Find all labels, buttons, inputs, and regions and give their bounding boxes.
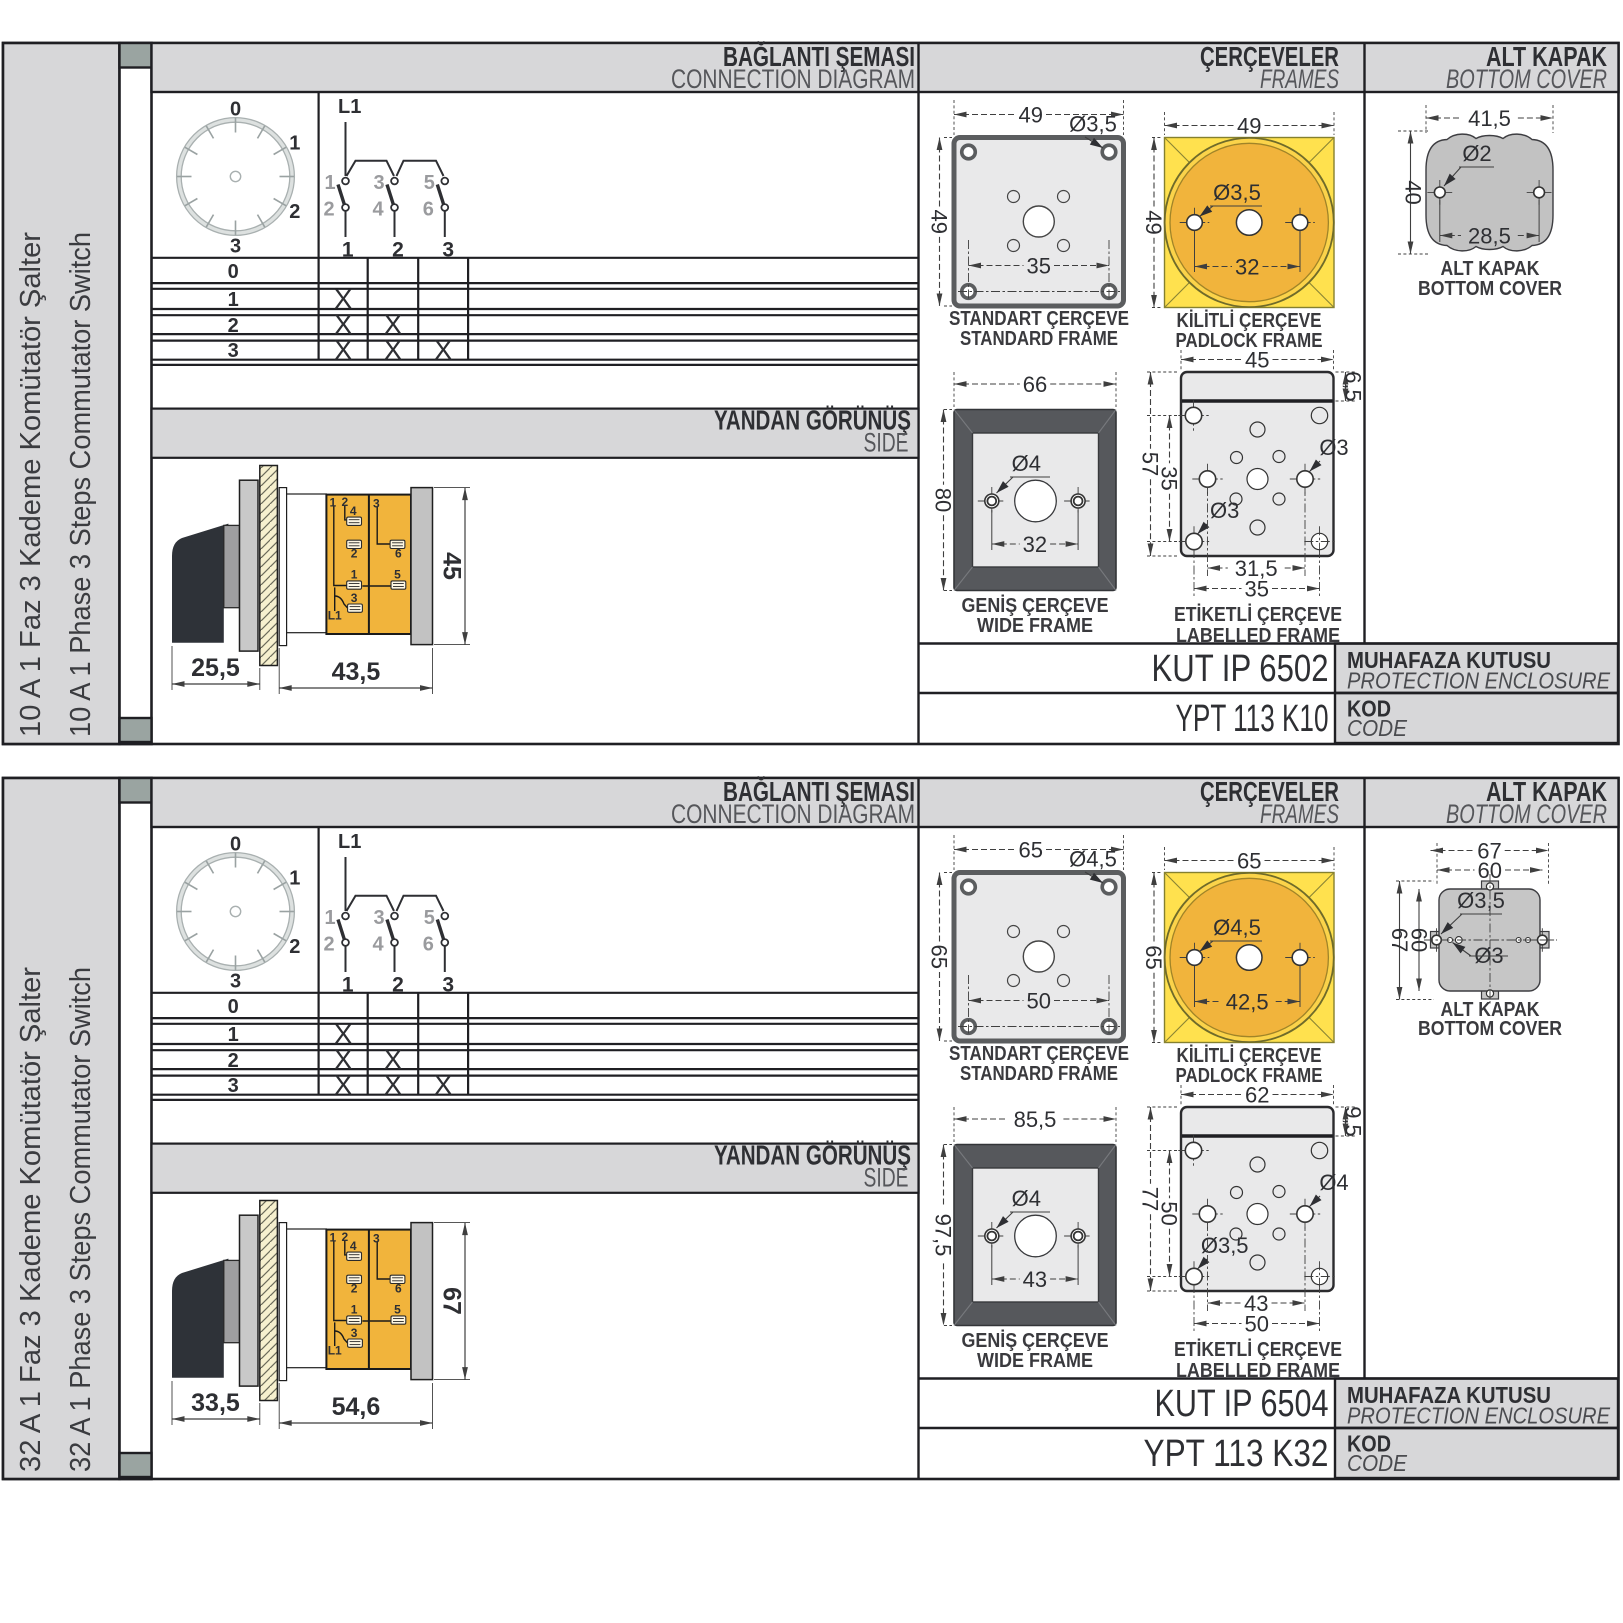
svg-text:L1: L1: [328, 608, 342, 622]
svg-text:4: 4: [372, 934, 384, 956]
svg-text:2: 2: [323, 199, 334, 221]
svg-text:33,5: 33,5: [191, 1389, 240, 1417]
svg-text:ETİKETLİ ÇERÇEVE: ETİKETLİ ÇERÇEVE: [1174, 603, 1342, 626]
svg-text:5: 5: [394, 1303, 401, 1317]
svg-text:3: 3: [351, 591, 358, 605]
svg-text:80: 80: [931, 488, 956, 512]
svg-text:KUT IP 6504: KUT IP 6504: [1155, 1383, 1329, 1425]
svg-text:X: X: [334, 1069, 353, 1100]
svg-text:X: X: [334, 334, 353, 365]
svg-text:L1: L1: [328, 1343, 342, 1357]
svg-text:1: 1: [228, 289, 239, 311]
svg-text:PROTECTION ENCLOSURE: PROTECTION ENCLOSURE: [1347, 668, 1610, 694]
svg-text:3: 3: [373, 497, 380, 511]
svg-text:50: 50: [1245, 1311, 1269, 1336]
svg-text:Ø4,5: Ø4,5: [1069, 847, 1117, 872]
svg-text:BOTTOM COVER: BOTTOM COVER: [1418, 277, 1562, 300]
svg-text:28,5: 28,5: [1468, 223, 1511, 248]
svg-text:3: 3: [228, 1075, 239, 1097]
svg-text:Ø3,5: Ø3,5: [1213, 180, 1261, 205]
svg-text:4: 4: [350, 1239, 357, 1253]
svg-text:Ø4,5: Ø4,5: [1213, 915, 1261, 940]
svg-text:6,5: 6,5: [1340, 371, 1365, 402]
svg-text:60: 60: [1406, 928, 1431, 952]
svg-text:2: 2: [289, 201, 300, 223]
svg-text:Ø3,5: Ø3,5: [1201, 1233, 1249, 1258]
svg-text:1: 1: [351, 568, 358, 582]
svg-text:65: 65: [927, 945, 952, 969]
svg-text:4: 4: [372, 199, 384, 221]
svg-text:49: 49: [1019, 102, 1043, 127]
svg-text:Ø3,5: Ø3,5: [1069, 112, 1117, 137]
svg-text:2: 2: [289, 936, 300, 958]
svg-text:49: 49: [927, 210, 952, 234]
svg-text:1: 1: [330, 496, 337, 510]
svg-text:9,5: 9,5: [1340, 1106, 1365, 1137]
svg-text:BOTTOM COVER: BOTTOM COVER: [1446, 64, 1607, 94]
svg-text:5: 5: [424, 907, 435, 929]
svg-text:32 A 1 Faz 3 Kademe Komütatör: 32 A 1 Faz 3 Kademe Komütatör Şalter: [15, 966, 47, 1472]
svg-text:43: 43: [1023, 1267, 1047, 1292]
svg-text:40: 40: [1400, 180, 1425, 204]
svg-text:Ø4: Ø4: [1012, 451, 1041, 476]
svg-text:3: 3: [230, 235, 241, 257]
svg-text:0: 0: [230, 98, 241, 120]
svg-text:2: 2: [351, 547, 358, 561]
svg-text:3: 3: [351, 1326, 358, 1340]
svg-text:62: 62: [1245, 1082, 1269, 1107]
svg-text:50: 50: [1157, 1201, 1182, 1225]
svg-text:41,5: 41,5: [1468, 106, 1511, 131]
svg-text:32: 32: [1023, 532, 1047, 557]
svg-text:35: 35: [1157, 466, 1182, 490]
svg-text:2: 2: [351, 1282, 358, 1296]
svg-text:X: X: [384, 334, 403, 365]
svg-text:67: 67: [437, 1287, 465, 1315]
svg-text:45: 45: [1245, 347, 1269, 372]
svg-text:Ø3: Ø3: [1319, 435, 1348, 460]
svg-text:35: 35: [1027, 253, 1051, 278]
svg-text:5: 5: [394, 568, 401, 582]
svg-text:Ø2: Ø2: [1462, 141, 1491, 166]
svg-text:YPT 113 K10: YPT 113 K10: [1176, 698, 1329, 740]
svg-text:65: 65: [1019, 837, 1043, 862]
svg-text:3: 3: [373, 907, 384, 929]
svg-text:2: 2: [341, 495, 348, 509]
svg-text:35: 35: [1245, 576, 1269, 601]
svg-text:0: 0: [228, 261, 239, 283]
svg-text:5: 5: [424, 172, 435, 194]
svg-text:CONNECTION DIAGRAM: CONNECTION DIAGRAM: [671, 799, 915, 829]
svg-text:43,5: 43,5: [332, 658, 381, 686]
svg-text:Ø4: Ø4: [1012, 1186, 1041, 1211]
svg-text:32: 32: [1235, 254, 1259, 279]
svg-text:65: 65: [1237, 848, 1261, 873]
svg-text:SIDE: SIDE: [864, 1163, 909, 1193]
svg-text:50: 50: [1027, 988, 1051, 1013]
svg-text:6: 6: [395, 547, 402, 561]
svg-text:1: 1: [289, 133, 300, 155]
svg-text:10 A 1 Faz 3 Kademe Komütatör: 10 A 1 Faz 3 Kademe Komütatör Şalter: [15, 231, 47, 737]
svg-text:YPT 113 K32: YPT 113 K32: [1144, 1433, 1329, 1475]
svg-text:10 A 1 Phase 3 Steps Commutato: 10 A 1 Phase 3 Steps Commutator Switch: [65, 232, 97, 737]
svg-text:25,5: 25,5: [191, 654, 240, 682]
svg-text:2: 2: [228, 1050, 239, 1072]
svg-text:4: 4: [350, 504, 357, 518]
svg-text:49: 49: [1141, 210, 1166, 234]
svg-text:1: 1: [228, 1024, 239, 1046]
svg-text:PROTECTION ENCLOSURE: PROTECTION ENCLOSURE: [1347, 1403, 1610, 1429]
svg-text:Ø3: Ø3: [1210, 498, 1239, 523]
svg-text:6: 6: [423, 934, 434, 956]
svg-text:BOTTOM COVER: BOTTOM COVER: [1418, 1017, 1562, 1040]
svg-text:60: 60: [1478, 858, 1502, 883]
svg-text:ETİKETLİ ÇERÇEVE: ETİKETLİ ÇERÇEVE: [1174, 1338, 1342, 1361]
svg-text:SIDE: SIDE: [864, 428, 909, 458]
svg-text:2: 2: [323, 934, 334, 956]
svg-text:3: 3: [228, 340, 239, 362]
svg-text:KUT IP 6502: KUT IP 6502: [1152, 648, 1329, 690]
svg-text:X: X: [434, 334, 453, 365]
svg-text:WIDE FRAME: WIDE FRAME: [977, 1349, 1093, 1372]
svg-text:Ø4: Ø4: [1319, 1170, 1348, 1195]
svg-text:0: 0: [230, 833, 241, 855]
svg-text:1: 1: [324, 172, 335, 194]
svg-text:65: 65: [1141, 945, 1166, 969]
svg-text:3: 3: [373, 1232, 380, 1246]
svg-text:X: X: [384, 1069, 403, 1100]
svg-text:BOTTOM COVER: BOTTOM COVER: [1446, 799, 1607, 829]
svg-text:L1: L1: [338, 96, 361, 118]
svg-text:45: 45: [437, 552, 465, 580]
svg-text:1: 1: [330, 1231, 337, 1245]
svg-text:3: 3: [373, 172, 384, 194]
svg-text:66: 66: [1023, 372, 1047, 397]
svg-text:FRAMES: FRAMES: [1260, 799, 1339, 829]
svg-text:CONNECTION DIAGRAM: CONNECTION DIAGRAM: [671, 64, 915, 94]
svg-text:54,6: 54,6: [332, 1393, 381, 1421]
svg-text:STANDARD FRAME: STANDARD FRAME: [960, 1062, 1118, 1085]
svg-text:49: 49: [1237, 113, 1261, 138]
svg-text:STANDARD FRAME: STANDARD FRAME: [960, 327, 1118, 350]
svg-text:1: 1: [324, 907, 335, 929]
svg-text:6: 6: [395, 1282, 402, 1296]
svg-text:85,5: 85,5: [1014, 1107, 1057, 1132]
svg-text:42,5: 42,5: [1226, 989, 1269, 1014]
svg-text:6: 6: [423, 199, 434, 221]
svg-text:2: 2: [228, 315, 239, 337]
svg-text:2: 2: [341, 1230, 348, 1244]
svg-text:3: 3: [230, 970, 241, 992]
svg-text:1: 1: [289, 868, 300, 890]
svg-text:1: 1: [351, 1303, 358, 1317]
svg-text:CODE: CODE: [1347, 1450, 1407, 1476]
svg-text:32 A 1 Phase 3 Steps Commutato: 32 A 1 Phase 3 Steps Commutator Switch: [65, 967, 97, 1472]
svg-text:X: X: [434, 1069, 453, 1100]
svg-text:FRAMES: FRAMES: [1260, 64, 1339, 94]
svg-text:L1: L1: [338, 831, 361, 853]
svg-text:Ø3,5: Ø3,5: [1457, 888, 1505, 913]
svg-text:WIDE FRAME: WIDE FRAME: [977, 614, 1093, 637]
svg-text:0: 0: [228, 996, 239, 1018]
svg-text:97,5: 97,5: [931, 1214, 956, 1257]
svg-text:CODE: CODE: [1347, 715, 1407, 741]
